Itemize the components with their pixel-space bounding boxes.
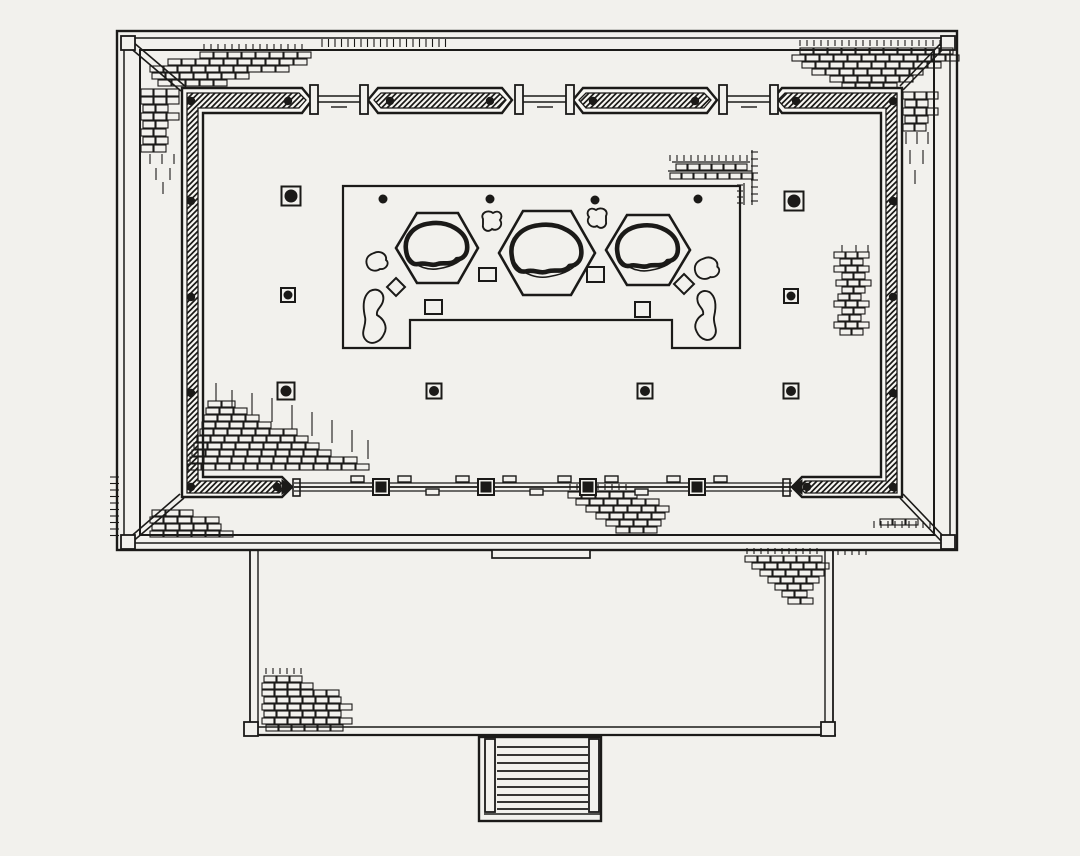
pillar-dot: [889, 97, 897, 105]
gate-post: [360, 85, 368, 114]
pillar-dot: [187, 293, 195, 301]
column-dot: [285, 190, 298, 203]
scanned-plan-page: [0, 0, 1080, 856]
pillar-dot: [691, 97, 699, 105]
column-dot: [786, 386, 796, 396]
sill-tab: [530, 489, 543, 495]
column-dot: [787, 292, 796, 301]
pillar-dot: [486, 97, 494, 105]
annex-corner-post: [821, 722, 835, 736]
gate-post: [719, 85, 727, 114]
gate-post: [310, 85, 318, 114]
pillar-dot: [187, 389, 195, 397]
pillar-dot: [889, 197, 897, 205]
plan-drawing: [0, 0, 1080, 856]
sill-tab: [605, 476, 618, 482]
colonnade-base-core: [692, 482, 702, 492]
pillar-dot: [486, 195, 495, 204]
terrace-corner-post: [121, 535, 135, 549]
sill-tab: [635, 489, 648, 495]
column-dot: [281, 386, 292, 397]
pillar-dot: [694, 195, 703, 204]
annex-corner-post: [244, 722, 258, 736]
sill-tab: [398, 476, 411, 482]
pillar-dot: [273, 483, 281, 491]
pillar-dot: [792, 97, 800, 105]
terrace-corner-post: [121, 36, 135, 50]
sill-tab: [714, 476, 727, 482]
column-dot: [284, 291, 293, 300]
sill-tab: [456, 476, 469, 482]
front-stairs: [479, 737, 601, 821]
column-dot: [640, 386, 650, 396]
pillar-dot: [284, 97, 292, 105]
terrace-corner-post: [941, 535, 955, 549]
sill-tab: [351, 476, 364, 482]
sill-tab: [667, 476, 680, 482]
colonnade-base-core: [376, 482, 386, 492]
sill-tab: [503, 476, 516, 482]
pillar-dot: [589, 97, 597, 105]
pillar-dot: [889, 483, 897, 491]
pillar-dot: [187, 97, 195, 105]
pillar-dot: [187, 197, 195, 205]
gate-post: [770, 85, 778, 114]
pillar-dot: [889, 293, 897, 301]
pillar-dot: [889, 389, 897, 397]
pillar-dot: [803, 483, 811, 491]
terrace-front-tab: [492, 550, 590, 558]
column-dot: [429, 386, 439, 396]
stair-rail: [485, 739, 495, 812]
sill-tab: [426, 489, 439, 495]
gate-post: [515, 85, 523, 114]
colonnade-base-core: [481, 482, 491, 492]
gate-post: [566, 85, 574, 114]
pillar-dot: [379, 195, 388, 204]
pillar-dot: [591, 196, 600, 205]
stair-rail: [589, 739, 599, 812]
sill-tab: [558, 476, 571, 482]
pillar-dot: [386, 97, 394, 105]
pillar-dot: [187, 483, 195, 491]
colonnade-base-core: [583, 482, 593, 492]
column-dot: [788, 195, 801, 208]
